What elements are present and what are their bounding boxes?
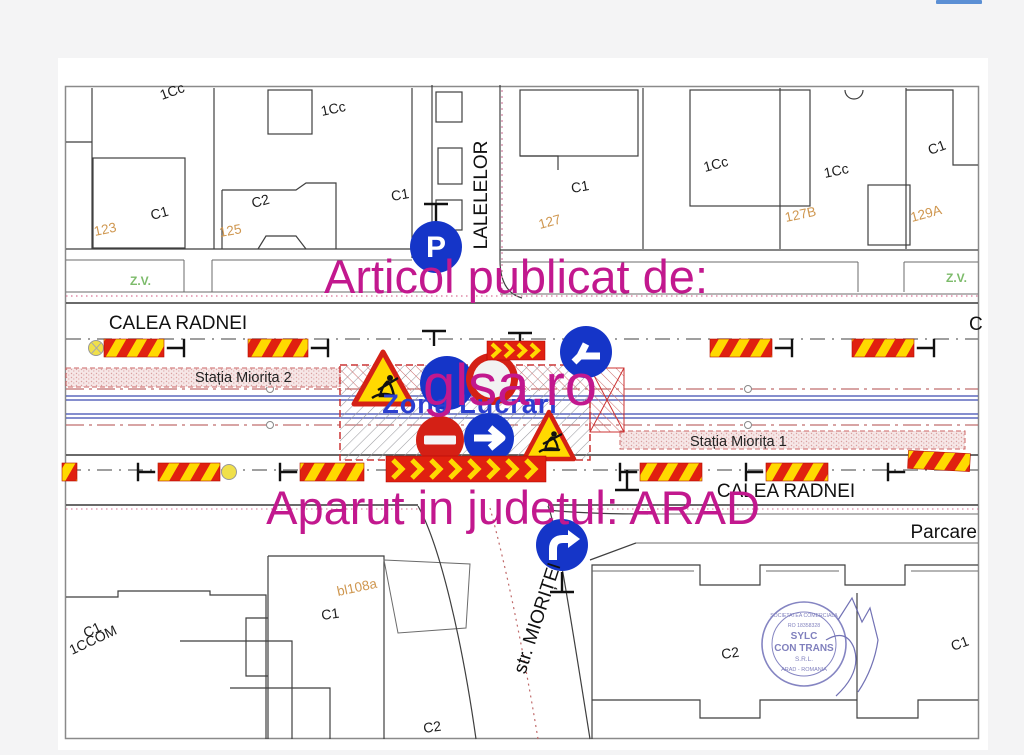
- parking-area-label: Parcare: [910, 522, 977, 543]
- barrier-icon: [908, 450, 971, 471]
- barrier-icon: [104, 339, 164, 357]
- green-zone-label: Z.V.: [130, 274, 151, 288]
- worker-icon: [387, 375, 393, 381]
- warning-lamp-icon: [222, 465, 237, 480]
- stamp-ring-top: SOCIETATEA COMERCIALA: [770, 613, 838, 619]
- parcel-label: C2: [720, 644, 740, 662]
- parcel-label: 1Cc: [702, 153, 730, 175]
- stamp-name-1: SYLC: [791, 631, 818, 642]
- barrier-icon: [62, 463, 77, 481]
- barrier-icon: [248, 339, 308, 357]
- parcel-label: C1: [570, 177, 591, 196]
- no-entry-bar-icon: [424, 436, 456, 445]
- parcel-label: C1: [926, 137, 948, 158]
- green-zone-label: Z.V.: [946, 271, 967, 285]
- watermark-line-3: Aparut in judetul: ARAD: [266, 481, 760, 534]
- address-label: bl108a: [336, 576, 379, 599]
- barrier-icon: [852, 339, 914, 357]
- barrier-post-icon: [918, 340, 934, 356]
- parcel-label: C1: [320, 605, 340, 623]
- address-label: 123: [93, 220, 118, 239]
- barrier-post-icon: [312, 340, 328, 356]
- chevron-board-bottom: [386, 456, 546, 482]
- barrier-post-icon: [776, 340, 792, 356]
- article-image: P: [0, 0, 1024, 755]
- tram-platform-station-1: [620, 431, 965, 449]
- company-stamp: SOCIETATEA COMERCIALA RO 18358328 SYLC C…: [762, 598, 878, 696]
- barrier-post-icon: [168, 340, 184, 356]
- street-label-mioritei: str. MIORIȚEI: [510, 560, 566, 676]
- address-label: 129A: [909, 202, 943, 225]
- barrier-icon: [710, 339, 772, 357]
- barrier-icon: [158, 463, 220, 481]
- barrier-post-icon: [888, 464, 904, 480]
- barrier-post-icon: [138, 464, 154, 480]
- barrier-post-icon: [746, 464, 762, 480]
- address-label: 127B: [784, 204, 818, 225]
- stamp-ring-bottom: ARAD - ROMANIA: [781, 667, 827, 673]
- barrier-icon: [300, 463, 364, 481]
- station-label-mioritia-1: Stația Miorița 1: [690, 434, 787, 450]
- building-outlines-bottom: [66, 506, 978, 739]
- barrier-icon: [640, 463, 702, 481]
- address-label: 125: [218, 221, 243, 240]
- street-label-partial: C: [969, 314, 983, 335]
- street-label-calea-radnei-top: CALEA RADNEI: [109, 313, 247, 334]
- barrier-post-icon: [280, 464, 296, 480]
- street-label-lalelelor: LALELELOR: [471, 141, 492, 250]
- stamp-reg-no: RO 18358328: [788, 623, 820, 629]
- watermark-line-2: glsa.ro: [423, 353, 597, 418]
- parcel-label: C2: [422, 718, 442, 736]
- stamp-name-2: CON TRANS: [774, 643, 834, 654]
- station-label-mioritia-2: Stația Miorița 2: [195, 370, 292, 386]
- parcel-label: C1: [390, 185, 411, 204]
- parcel-label: 1Cc: [319, 98, 347, 119]
- address-label: 127: [537, 212, 563, 232]
- parcel-label: C1: [949, 633, 971, 654]
- sign-post-icon: [424, 204, 448, 222]
- barrier-icon: [766, 463, 828, 481]
- mandatory-right-arrow-sign: [464, 413, 514, 463]
- stamp-name-3: S.R.L.: [795, 656, 813, 663]
- watermark-line-1: Articol publicat de:: [324, 250, 708, 303]
- parcel-label: 1Cc: [822, 160, 850, 181]
- traffic-plan-drawing: P: [0, 0, 1024, 755]
- parcel-label: C1: [149, 203, 171, 223]
- parcel-label: 1Cc: [158, 79, 187, 103]
- parcel-label: C2: [250, 191, 272, 211]
